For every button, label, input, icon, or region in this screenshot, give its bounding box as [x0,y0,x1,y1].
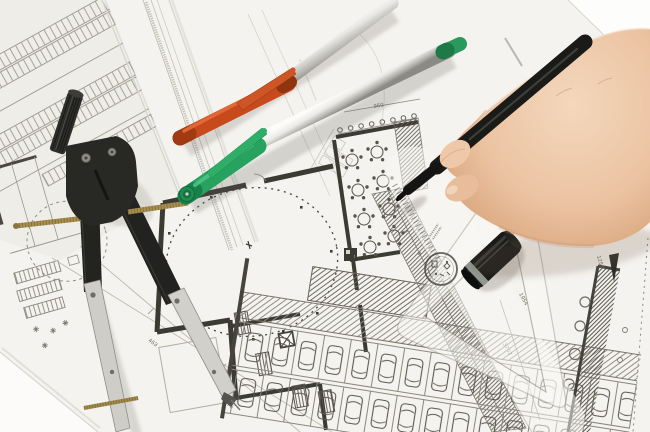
blueprint-photo: 463 575 960 [0,0,650,432]
photo-stage: 463 575 960 [0,0,650,432]
